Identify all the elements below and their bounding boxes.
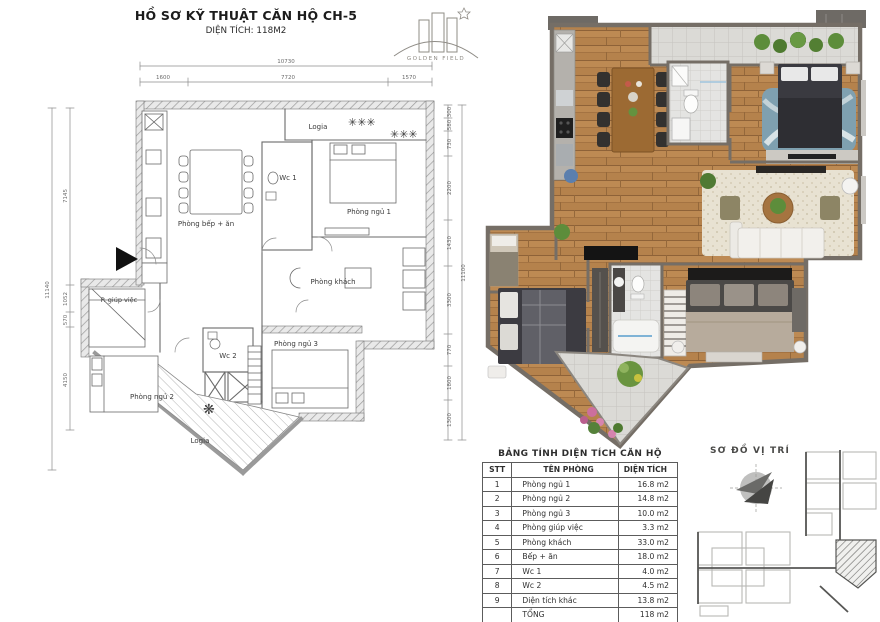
- cell-area: 4.0 m2: [618, 564, 677, 579]
- location-plan: [698, 450, 876, 616]
- tech-ladder: [248, 346, 261, 404]
- compass-icon: [730, 464, 782, 512]
- cell-name: Phòng ngủ 3: [512, 506, 618, 521]
- cell-name: Wc 2: [512, 579, 618, 594]
- area-table-section: BẢNG TÍNH DIỆN TÍCH CĂN HỘ STT TÊN PHÒNG…: [482, 449, 678, 622]
- cell-area: 10.0 m2: [618, 506, 677, 521]
- tech-door-arcs: [140, 237, 332, 352]
- table-row: 5Phòng khách33.0 m2: [483, 535, 678, 550]
- cell-stt: 4: [483, 521, 512, 536]
- label-logia-top: Logia: [309, 123, 328, 131]
- render-window2: [861, 176, 866, 224]
- cell-area: 4.5 m2: [618, 579, 677, 594]
- plant-row-icon: ✳✳✳: [348, 116, 376, 129]
- page-subtitle: DIỆN TÍCH: 118M2: [128, 26, 364, 36]
- render-window: [861, 80, 866, 136]
- svg-text:580: 580: [447, 119, 453, 130]
- svg-text:7720: 7720: [281, 75, 295, 81]
- cell-stt-empty: [483, 608, 512, 622]
- label-wc2: Wc 2: [219, 352, 236, 360]
- cell-area: 33.0 m2: [618, 535, 677, 550]
- table-row: 1Phòng ngủ 116.8 m2: [483, 477, 678, 492]
- cell-stt: 3: [483, 506, 512, 521]
- cell-area: 18.0 m2: [618, 550, 677, 565]
- label-bedroom2: Phòng ngủ 2: [130, 393, 174, 401]
- cell-stt: 2: [483, 492, 512, 507]
- render-living: [700, 166, 858, 258]
- table-row: 7Wc 14.0 m2: [483, 564, 678, 579]
- cell-stt: 6: [483, 550, 512, 565]
- location-unit-highlight: [836, 540, 876, 588]
- table-row: 9Diện tích khác13.8 m2: [483, 593, 678, 608]
- cell-name: Wc 1: [512, 564, 618, 579]
- table-header-row: STT TÊN PHÒNG DIỆN TÍCH: [483, 463, 678, 478]
- cell-name: Phòng ngủ 2: [512, 492, 618, 507]
- bedroom3-headboard: [688, 268, 792, 280]
- svg-text:1800: 1800: [447, 376, 453, 390]
- cell-stt: 5: [483, 535, 512, 550]
- render-wc1: [668, 62, 728, 144]
- cell-area: 3.3 m2: [618, 521, 677, 536]
- svg-text:7145: 7145: [63, 189, 69, 203]
- render-kitchen: [554, 30, 578, 183]
- plant-row2-icon: ✳✳✳: [390, 128, 418, 141]
- entrance-arrow-icon: [116, 247, 138, 271]
- render-plan: [488, 10, 866, 446]
- living-fan: [842, 178, 858, 194]
- table-total-row: TỔNG118 m2: [483, 608, 678, 622]
- cell-name: Phòng ngủ 1: [512, 477, 618, 492]
- table-row: 3Phòng ngủ 310.0 m2: [483, 506, 678, 521]
- label-bedroom3: Phòng ngủ 3: [274, 340, 318, 348]
- svg-text:730: 730: [447, 138, 453, 149]
- table-row: 4Phòng giúp việc3.3 m2: [483, 521, 678, 536]
- label-living: Phòng khách: [310, 278, 355, 286]
- living-tv: [756, 166, 826, 173]
- render-balcony-top: [650, 27, 858, 65]
- label-wc1: Wc 1: [279, 174, 296, 182]
- svg-text:1052: 1052: [63, 292, 69, 306]
- logo-text: GOLDEN FIELD: [392, 56, 480, 62]
- svg-text:1300: 1300: [447, 413, 453, 427]
- cell-stt: 8: [483, 579, 512, 594]
- cell-area: 14.8 m2: [618, 492, 677, 507]
- cell-stt: 7: [483, 564, 512, 579]
- bedroom2-tv: [584, 246, 638, 260]
- col-dien-tich: DIỆN TÍCH: [618, 463, 677, 478]
- svg-text:1570: 1570: [402, 75, 416, 81]
- svg-text:1430: 1430: [447, 236, 453, 250]
- cell-name: Diện tích khác: [512, 593, 618, 608]
- cell-total-label: TỔNG: [512, 608, 618, 622]
- blueprint-canvas: 10730 1600 7720 1570 11140 7145 1052 570…: [0, 0, 880, 622]
- living-armchair: [720, 196, 740, 220]
- cell-area: 16.8 m2: [618, 477, 677, 492]
- table-row: 6Bếp + ăn18.0 m2: [483, 550, 678, 565]
- svg-text:570: 570: [63, 314, 69, 325]
- cell-area: 13.8 m2: [618, 593, 677, 608]
- area-table: STT TÊN PHÒNG DIỆN TÍCH 1Phòng ngủ 116.8…: [482, 462, 678, 622]
- table-row: 2Phòng ngủ 214.8 m2: [483, 492, 678, 507]
- location-building-outline: [698, 452, 876, 616]
- living-plant: [700, 173, 716, 189]
- svg-text:4150: 4150: [63, 373, 69, 387]
- tech-plan: 10730 1600 7720 1570 11140 7145 1052 570…: [45, 59, 467, 473]
- cell-name: Bếp + ăn: [512, 550, 618, 565]
- logia-plant-icon: ❋: [203, 402, 215, 418]
- col-ten-phong: TÊN PHÒNG: [512, 463, 618, 478]
- svg-text:300: 300: [447, 106, 453, 117]
- label-bedroom1: Phòng ngủ 1: [347, 208, 391, 216]
- label-logia-bottom: Logia: [191, 437, 210, 445]
- area-table-title: BẢNG TÍNH DIỆN TÍCH CĂN HỘ: [482, 449, 678, 459]
- location-plan-title: SƠ ĐỒ VỊ TRÍ: [710, 446, 790, 456]
- cell-name: Phòng giúp việc: [512, 521, 618, 536]
- living-armchair2: [820, 196, 840, 220]
- render-wc2: [610, 264, 662, 358]
- logo: GOLDEN FIELD: [392, 2, 480, 74]
- label-maid: P. giúp việc: [101, 296, 138, 304]
- cell-name: Phòng khách: [512, 535, 618, 550]
- col-stt: STT: [483, 463, 512, 478]
- title-block: HỒ SƠ KỸ THUẬT CĂN HỘ CH-5 DIỆN TÍCH: 11…: [128, 8, 364, 36]
- tech-bed1: [325, 143, 396, 235]
- tech-bed2: [90, 356, 158, 412]
- cell-stt: 1: [483, 477, 512, 492]
- svg-text:11140: 11140: [45, 281, 51, 299]
- svg-text:770: 770: [447, 344, 453, 355]
- svg-text:3300: 3300: [447, 293, 453, 307]
- svg-text:10730: 10730: [277, 59, 295, 65]
- page-title: HỒ SƠ KỸ THUẬT CĂN HỘ CH-5: [128, 8, 364, 23]
- technical-sheet-page: 10730 1600 7720 1570 11140 7145 1052 570…: [0, 0, 880, 622]
- location-building-core: [698, 450, 876, 612]
- svg-text:2200: 2200: [447, 181, 453, 195]
- table-row: 8Wc 24.5 m2: [483, 579, 678, 594]
- label-kitchen: Phòng bếp + ăn: [178, 220, 234, 228]
- tech-bed3: [272, 350, 348, 408]
- cell-stt: 9: [483, 593, 512, 608]
- tech-dining-table: [179, 150, 253, 214]
- svg-text:11100: 11100: [461, 264, 467, 282]
- cell-total-value: 118 m2: [618, 608, 677, 622]
- svg-text:1600: 1600: [156, 75, 170, 81]
